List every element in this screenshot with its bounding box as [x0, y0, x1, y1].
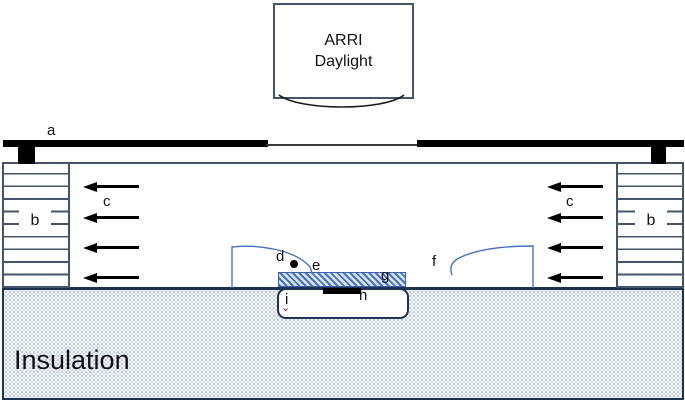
red-caret-marker: ⌄ — [281, 303, 290, 314]
flow-arrow — [547, 212, 603, 223]
arrow-head-icon — [83, 213, 97, 223]
arrow-shaft — [97, 185, 139, 188]
label-c-left: c — [103, 194, 111, 209]
label-a: a — [47, 123, 55, 138]
arrow-head-icon — [83, 182, 97, 192]
lamp-type: Daylight — [315, 51, 373, 72]
arrow-head-icon — [83, 243, 97, 253]
arrow-shaft — [97, 216, 139, 219]
slit-window-line — [266, 144, 418, 146]
flow-arrow — [83, 212, 139, 223]
flow-straightener-right: b — [616, 162, 684, 288]
lamp-name: ARRI — [324, 30, 362, 51]
arrow-shaft — [561, 276, 603, 279]
flow-arrow — [83, 181, 139, 192]
insulation-label: Insulation — [14, 345, 130, 376]
lamp-box: ARRI Daylight — [273, 3, 414, 99]
label-f: f — [432, 254, 436, 269]
arrow-shaft — [97, 276, 139, 279]
flow-arrow — [83, 272, 139, 283]
clamp-block-left — [18, 146, 35, 164]
arrow-head-icon — [547, 273, 561, 283]
flow-arrow — [547, 242, 603, 253]
sensor-bar — [323, 288, 361, 294]
clamp-block-right — [651, 146, 666, 164]
flow-arrow — [547, 272, 603, 283]
measurement-point-dot — [290, 260, 298, 268]
experimental-setup-diagram: ARRI Daylight a b b c c Insulation d e f — [0, 0, 685, 406]
label-b-right: b — [635, 206, 667, 236]
label-d: d — [276, 249, 284, 264]
label-e: e — [312, 258, 320, 273]
flow-straightener-left: b — [2, 162, 70, 288]
label-g: g — [381, 268, 389, 283]
label-c-right: c — [566, 194, 574, 209]
arrow-head-icon — [547, 243, 561, 253]
flow-arrow — [547, 181, 603, 192]
label-h: h — [359, 288, 367, 303]
label-b-left: b — [19, 206, 51, 236]
arrow-shaft — [561, 246, 603, 249]
shutter-bar-left — [3, 140, 268, 147]
arrow-shaft — [561, 216, 603, 219]
arrow-shaft — [561, 185, 603, 188]
arrow-head-icon — [547, 213, 561, 223]
arrow-head-icon — [547, 182, 561, 192]
arrow-shaft — [97, 246, 139, 249]
shutter-bar-right — [417, 140, 684, 147]
arrow-head-icon — [83, 273, 97, 283]
flow-arrow — [83, 242, 139, 253]
